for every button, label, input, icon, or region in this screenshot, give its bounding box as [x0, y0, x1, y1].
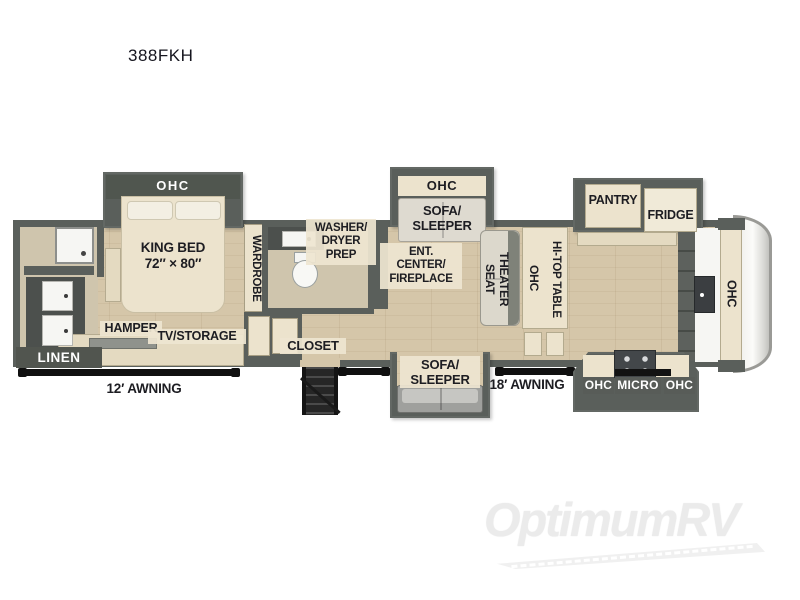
awning-18ft-label: 18′ AWNING	[483, 377, 571, 393]
bathroom-sink	[42, 281, 73, 311]
awning-bar-12ft	[20, 369, 238, 376]
dealer-watermark: OptimumRV	[484, 492, 790, 548]
bedroom-bench	[105, 248, 121, 302]
closet-label: CLOSET	[280, 338, 346, 354]
sofa-sleeper-bottom-label: SOFA/ SLEEPER	[400, 356, 480, 388]
microwave-label: MICRO	[615, 377, 661, 394]
king-bed-label: KING BED 72″ × 80″	[121, 238, 225, 274]
hi-top-chair	[546, 332, 564, 356]
front-ohc-label: OHC	[720, 254, 742, 334]
tv-storage-label: TV/STORAGE	[148, 329, 246, 344]
kitchen-sink-console	[694, 276, 715, 313]
kitchen-ohc-right-label: OHC	[664, 377, 695, 394]
washer-dryer-prep-label: WASHER/ DRYER PREP	[306, 219, 376, 265]
closet-shelf	[248, 316, 270, 356]
kitchen-counter	[577, 232, 677, 246]
fridge-label: FRIDGE	[644, 208, 697, 223]
dinette-ohc-label: OHC	[524, 248, 544, 308]
wall-segment	[97, 227, 104, 277]
bedroom-ohc-label: OHC	[103, 175, 243, 197]
sofa-sleeper-bottom	[397, 385, 483, 413]
kitchen-cabinets	[678, 232, 695, 361]
linen-closet-label: LINEN	[16, 347, 102, 368]
wardrobe-label: WARDROBE	[244, 226, 266, 310]
pantry-label: PANTRY	[585, 192, 641, 208]
awning-12ft-label: 12′ AWNING	[86, 381, 202, 397]
bath-cabinet	[24, 266, 94, 275]
awning-bar-segment	[340, 368, 388, 375]
entry-stairs	[302, 367, 338, 415]
model-number-label: 388FKH	[128, 46, 193, 66]
range-hood	[615, 369, 671, 376]
hi-top-chair	[524, 332, 542, 356]
shower	[55, 227, 94, 264]
floorplan-page: 388FKH LINEN OHC KING BED 72″ × 80″ HAMP…	[0, 0, 800, 600]
entry-door-opening	[300, 358, 340, 367]
sofa-sleeper-top-label: SOFA/ SLEEPER	[400, 202, 484, 234]
sofa-ohc-label: OHC	[398, 176, 486, 196]
kitchen-ohc-left-label: OHC	[583, 377, 614, 394]
theater-seat-label: THEATER SEAT	[478, 240, 516, 318]
awning-bar-18ft	[497, 368, 573, 375]
bathroom-sink	[42, 315, 73, 346]
hi-top-table-label: HI-TOP TABLE	[544, 230, 566, 328]
entertainment-center-label: ENT. CENTER/ FIREPLACE	[380, 243, 462, 289]
